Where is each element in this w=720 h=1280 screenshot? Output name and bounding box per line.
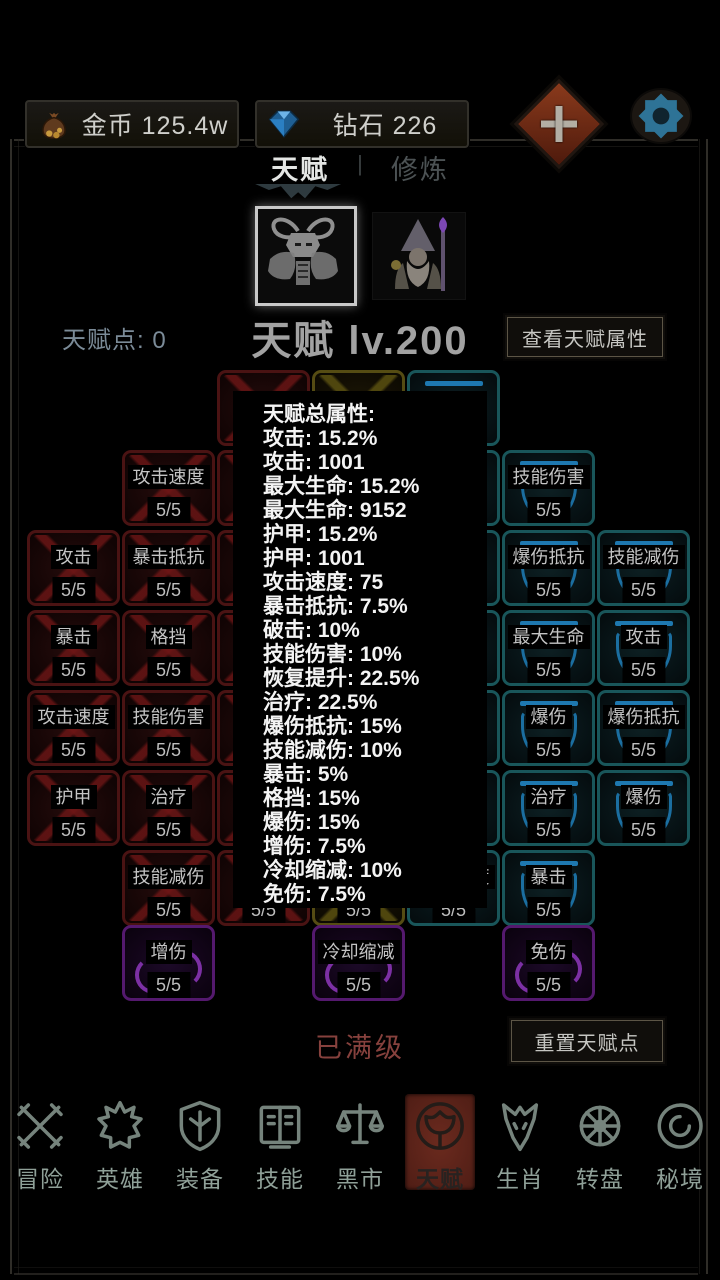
talent-tile-level: 5/5 — [52, 657, 95, 683]
popup-stat-line: 爆伤抵抗: 15% — [263, 715, 487, 739]
popup-stat-line: 攻击: 15.2% — [263, 427, 487, 451]
popup-stat-line: 治疗: 22.5% — [263, 691, 487, 715]
tab-talent-label: 天赋 — [271, 155, 329, 185]
tab-talent[interactable]: 天赋 — [271, 148, 329, 187]
talent-tile-level: 5/5 — [622, 577, 665, 603]
nav-item-label: 生肖 — [480, 1160, 560, 1194]
nav-item-label: 英雄 — [80, 1160, 160, 1194]
talent-tile-level: 5/5 — [147, 737, 190, 763]
nav-item-wheel[interactable]: 转盘 — [560, 1092, 640, 1208]
talent-tile-冷却缩减[interactable]: 冷却缩减5/5 — [312, 925, 405, 1001]
talent-tile-label: 暴击抵抗 — [128, 545, 210, 569]
moneybag-icon — [35, 105, 73, 143]
nav-item-zodiac[interactable]: 生肖 — [480, 1092, 560, 1208]
settings-button[interactable] — [630, 88, 692, 144]
talent-tile-最大生命[interactable]: 最大生命5/5 — [502, 610, 595, 686]
popup-stat-line: 技能减伤: 10% — [263, 739, 487, 763]
scales-icon — [332, 1098, 388, 1154]
talent-tile-label: 治疗 — [526, 785, 572, 809]
popup-stat-line: 最大生命: 15.2% — [263, 475, 487, 499]
popup-stat-line: 冷却缩减: 10% — [263, 859, 487, 883]
talent-tile-level: 5/5 — [527, 577, 570, 603]
talent-tile-label: 攻击速度 — [33, 705, 115, 729]
talent-tile-label: 爆伤抵抗 — [508, 545, 590, 569]
talent-tile-level: 5/5 — [527, 737, 570, 763]
talent-screen: 金币 125.4w 钻石 226 天赋 | 修炼 — [0, 0, 720, 1280]
talent-tile-level: 5/5 — [147, 497, 190, 523]
talent-tile-level: 5/5 — [527, 657, 570, 683]
nav-item-skills[interactable]: 技能 — [240, 1092, 320, 1208]
talent-tile-技能伤害[interactable]: 技能伤害5/5 — [502, 450, 595, 526]
vortex-icon — [652, 1098, 708, 1154]
talent-tile-label: 格挡 — [146, 625, 192, 649]
popup-stat-line: 天赋总属性: — [263, 403, 487, 427]
talent-tile-label: 技能减伤 — [603, 545, 685, 569]
talent-tile-label: 爆伤 — [621, 785, 667, 809]
popup-stat-line: 最大生命: 9152 — [263, 499, 487, 523]
talent-tile-level: 5/5 — [622, 737, 665, 763]
talent-tile-level: 5/5 — [147, 817, 190, 843]
nav-item-label: 冒险 — [0, 1160, 80, 1194]
talent-tile-label: 治疗 — [146, 785, 192, 809]
talent-tile-label: 技能减伤 — [128, 865, 210, 889]
talent-tile-增伤[interactable]: 增伤5/5 — [122, 925, 215, 1001]
talent-tile-level: 5/5 — [527, 897, 570, 923]
talent-tile-技能伤害[interactable]: 技能伤害5/5 — [122, 690, 215, 766]
nav-item-label: 天赋 — [400, 1160, 480, 1194]
talent-tile-技能减伤[interactable]: 技能减伤5/5 — [597, 530, 690, 606]
talent-tile-技能减伤[interactable]: 技能减伤5/5 — [122, 850, 215, 926]
popup-stat-line: 护甲: 1001 — [263, 547, 487, 571]
nav-item-label: 技能 — [240, 1160, 320, 1194]
talent-tile-护甲[interactable]: 护甲5/5 — [27, 770, 120, 846]
talent-tile-level: 5/5 — [622, 657, 665, 683]
nav-item-market[interactable]: 黑市 — [320, 1092, 400, 1208]
talent-tile-label: 攻击 — [51, 545, 97, 569]
popup-stat-line: 暴击: 5% — [263, 763, 487, 787]
talent-tile-label: 冷却缩减 — [318, 940, 400, 964]
talent-tile-label: 攻击 — [621, 625, 667, 649]
talent-tile-level: 5/5 — [527, 972, 570, 998]
diamond-amount: 钻石 226 — [303, 106, 467, 142]
crossed-swords-icon — [12, 1098, 68, 1154]
talent-tile-label: 技能伤害 — [508, 465, 590, 489]
nav-item-label: 转盘 — [560, 1160, 640, 1194]
talent-tile-label: 暴击 — [51, 625, 97, 649]
bottom-nav: 冒险英雄装备技能黑市天赋生肖转盘秘境 — [0, 1092, 720, 1212]
popup-stat-line: 攻击: 1001 — [263, 451, 487, 475]
spellbook-icon — [252, 1098, 308, 1154]
tab-active-ornament — [255, 184, 341, 199]
talent-tile-level: 5/5 — [527, 497, 570, 523]
talent-tile-level: 5/5 — [337, 972, 380, 998]
nav-item-hero[interactable]: 英雄 — [80, 1092, 160, 1208]
talent-tile-label: 暴击 — [526, 865, 572, 889]
warrior-portrait-icon — [258, 209, 348, 297]
tab-cultivate[interactable]: 修炼 — [391, 148, 449, 187]
talent-tile-label: 免伤 — [526, 940, 572, 964]
talent-tile-level: 5/5 — [52, 737, 95, 763]
talent-tile-治疗[interactable]: 治疗5/5 — [122, 770, 215, 846]
tab-divider: | — [357, 151, 363, 177]
popup-stat-line: 增伤: 7.5% — [263, 835, 487, 859]
diamond-icon — [265, 105, 303, 143]
talent-tile-爆伤[interactable]: 爆伤5/5 — [597, 770, 690, 846]
gold-amount: 金币 125.4w — [73, 106, 237, 142]
popup-stat-line: 恢复提升: 22.5% — [263, 667, 487, 691]
talent-tile-免伤[interactable]: 免伤5/5 — [502, 925, 595, 1001]
wolf-icon — [492, 1098, 548, 1154]
talent-tile-攻击速度[interactable]: 攻击速度5/5 — [27, 690, 120, 766]
nav-item-label: 装备 — [160, 1160, 240, 1194]
hero-helmet-icon — [92, 1098, 148, 1154]
talent-tile-level: 5/5 — [147, 972, 190, 998]
nav-item-adventure[interactable]: 冒险 — [0, 1092, 80, 1208]
nav-item-label: 黑市 — [320, 1160, 400, 1194]
talent-tile-label: 护甲 — [51, 785, 97, 809]
talent-tile-level: 5/5 — [527, 817, 570, 843]
popup-stat-line: 技能伤害: 10% — [263, 643, 487, 667]
talent-tile-level: 5/5 — [52, 817, 95, 843]
talent-tile-level: 5/5 — [147, 577, 190, 603]
talent-tile-level: 5/5 — [147, 897, 190, 923]
talent-tile-level: 5/5 — [52, 577, 95, 603]
talent-tile-暴击抵抗[interactable]: 暴击抵抗5/5 — [122, 530, 215, 606]
talent-tile-攻击[interactable]: 攻击5/5 — [27, 530, 120, 606]
shield-icon — [172, 1098, 228, 1154]
talent-tile-爆伤抵抗[interactable]: 爆伤抵抗5/5 — [597, 690, 690, 766]
popup-stat-line: 护甲: 15.2% — [263, 523, 487, 547]
popup-stat-line: 格挡: 15% — [263, 787, 487, 811]
talent-tile-label: 攻击速度 — [128, 465, 210, 489]
talent-tile-格挡[interactable]: 格挡5/5 — [122, 610, 215, 686]
talent-tile-label: 爆伤 — [526, 705, 572, 729]
talent-tile-label: 最大生命 — [508, 625, 590, 649]
diamond-currency-pill[interactable]: 钻石 226 — [255, 100, 469, 148]
popup-stat-line: 破击: 10% — [263, 619, 487, 643]
popup-stat-line: 爆伤: 15% — [263, 811, 487, 835]
talent-tile-暴击[interactable]: 暴击5/5 — [27, 610, 120, 686]
reset-talent-button[interactable]: 重置天赋点 — [507, 1016, 667, 1066]
view-talent-attrs-button[interactable]: 查看天赋属性 — [503, 313, 667, 361]
talent-tile-攻击[interactable]: 攻击5/5 — [597, 610, 690, 686]
frame-bottom-border — [14, 1267, 698, 1275]
popup-stat-line: 免伤: 7.5% — [263, 883, 487, 907]
talent-tile-爆伤[interactable]: 爆伤5/5 — [502, 690, 595, 766]
spin-wheel-icon — [572, 1098, 628, 1154]
nav-item-realm[interactable]: 秘境 — [640, 1092, 720, 1208]
tab-cultivate-label: 修炼 — [391, 155, 449, 185]
talent-tile-攻击速度[interactable]: 攻击速度5/5 — [122, 450, 215, 526]
popup-stat-line: 攻击速度: 75 — [263, 571, 487, 595]
talent-tile-level: 5/5 — [622, 817, 665, 843]
wizard-avatar[interactable] — [372, 212, 466, 300]
talent-tile-level: 5/5 — [147, 657, 190, 683]
talent-tile-label: 技能伤害 — [128, 705, 210, 729]
talent-tile-label: 增伤 — [146, 940, 192, 964]
talent-tree-icon — [412, 1098, 468, 1154]
warrior-avatar[interactable] — [255, 206, 357, 306]
talent-tile-暴击[interactable]: 暴击5/5 — [502, 850, 595, 926]
popup-stat-line: 暴击抵抗: 7.5% — [263, 595, 487, 619]
nav-item-talent[interactable]: 天赋 — [400, 1092, 480, 1208]
gear-icon — [630, 88, 692, 144]
talent-summary-popup[interactable]: 天赋总属性:攻击: 15.2%攻击: 1001最大生命: 15.2%最大生命: … — [233, 391, 487, 908]
talent-tile-爆伤抵抗[interactable]: 爆伤抵抗5/5 — [502, 530, 595, 606]
nav-item-label: 秘境 — [640, 1160, 720, 1194]
talent-tile-治疗[interactable]: 治疗5/5 — [502, 770, 595, 846]
talent-tile-label: 爆伤抵抗 — [603, 705, 685, 729]
plus-icon — [530, 95, 588, 153]
gold-currency-pill[interactable]: 金币 125.4w — [25, 100, 239, 148]
top-tabs: 天赋 | 修炼 — [0, 148, 720, 208]
nav-item-equipment[interactable]: 装备 — [160, 1092, 240, 1208]
wizard-portrait-icon — [373, 213, 463, 297]
